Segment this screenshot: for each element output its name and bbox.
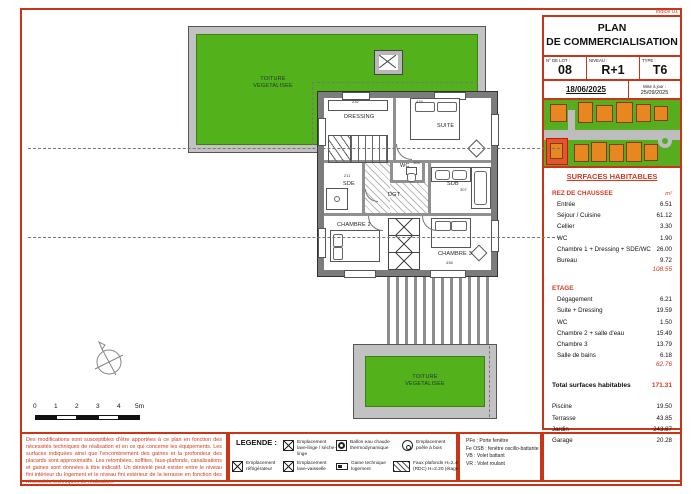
pillow xyxy=(451,221,467,231)
thumb-building xyxy=(550,104,567,122)
thumb-road xyxy=(568,110,575,140)
roof-hidden-edge-v xyxy=(312,82,313,145)
bathtub xyxy=(471,167,491,209)
bathtub-basin xyxy=(474,171,487,205)
abbreviation-list: PFe : Porte fenêtre Fe OSB : fenêtre osc… xyxy=(460,434,540,468)
hatched-area xyxy=(365,163,390,213)
surface-row: Cellier3.30 xyxy=(552,221,672,232)
window-symbol xyxy=(344,270,376,278)
hatched-area xyxy=(390,183,428,213)
shower xyxy=(326,188,348,210)
skylight-icon xyxy=(375,51,402,74)
roof-bottom-dashed-edge xyxy=(489,346,490,417)
room-label-wc: WC xyxy=(400,163,410,169)
date-row: 18/06/2025 Mise à jour : 25/09/2025 xyxy=(544,81,680,100)
room-label-sde: SDE xyxy=(343,181,355,187)
armchair xyxy=(471,245,488,262)
toilet-bowl xyxy=(407,173,416,182)
scale-tick: 5m xyxy=(135,403,144,410)
surface-row: WC1.50 xyxy=(552,317,672,328)
update-date: Mise à jour : 25/09/2025 xyxy=(629,84,680,96)
scale-bar: 0 1 2 3 4 5m xyxy=(35,403,147,425)
scale-segment xyxy=(119,415,140,420)
scale-segment xyxy=(98,415,119,420)
surface-row: WC1.90 xyxy=(552,233,672,244)
section-line xyxy=(28,148,560,149)
surface-row: Suite + Dressing19.59 xyxy=(552,305,672,316)
window-symbol xyxy=(318,228,326,258)
dimension-label: 104 xyxy=(413,160,420,165)
window-symbol xyxy=(318,118,326,146)
closet xyxy=(388,218,420,236)
technical-duct-icon xyxy=(336,463,348,470)
scale-tick: 3 xyxy=(96,403,100,410)
door-arc xyxy=(422,216,437,231)
window-symbol xyxy=(491,220,499,252)
thumb-building xyxy=(626,142,642,162)
scale-tick: 0 xyxy=(33,403,37,410)
thumb-highlighted-lot xyxy=(546,138,568,165)
room-label-suite: SUITE xyxy=(437,123,454,129)
surface-row: Jardin243.87 xyxy=(552,424,672,435)
bed-chambre2 xyxy=(330,230,380,262)
pillow xyxy=(437,102,457,112)
legend-item: Ballon eau chaude thermodynamique xyxy=(336,440,390,452)
surface-row: Chambre 313.79 xyxy=(552,339,672,350)
thumb-building xyxy=(550,143,563,159)
etage-subtotal: 62.76 xyxy=(552,361,672,372)
niveau-cell: NIVEAU : R+1 xyxy=(587,57,640,79)
stair-winder xyxy=(328,135,352,163)
wood-stove-icon xyxy=(402,440,413,451)
thumb-building xyxy=(574,144,589,162)
window-symbol xyxy=(491,114,499,146)
dimension-label: 436 xyxy=(446,260,453,265)
thumb-building xyxy=(636,104,651,122)
roof-bottom-label: TOITURE VEGETALISEE xyxy=(380,374,470,388)
type-cell: TYPE : T6 xyxy=(640,57,680,79)
dimension-label: 479 xyxy=(416,99,423,104)
fridge-box-icon xyxy=(232,461,243,472)
dimension-label: 232 xyxy=(352,99,359,104)
thumb-building xyxy=(609,144,624,162)
lot-cell: N° DE LOT : 08 xyxy=(544,57,587,79)
closet xyxy=(388,252,420,270)
legend-item: Emplacement poêle à bois xyxy=(402,440,456,452)
surfaces-title: SURFACES HABITABLES xyxy=(552,172,672,181)
partition-wall xyxy=(393,98,396,160)
plan-sheet: Indice 01 TOITURE VEGETALISEE TOITURE VE… xyxy=(0,0,700,494)
dimension-label: 211 xyxy=(344,173,350,178)
legend-item: Emplacement lave-vaisselle xyxy=(283,461,337,473)
scale-segment xyxy=(77,415,98,420)
surface-row: Dégagement6.21 xyxy=(552,294,672,305)
shower-drain xyxy=(334,196,340,202)
water-heater-icon xyxy=(336,440,347,451)
thumb-building xyxy=(616,102,633,123)
total-row: Total surfaces habitables 171.31 xyxy=(552,379,672,392)
surfaces-table: SURFACES HABITABLES REZ DE CHAUSSEE m² E… xyxy=(544,168,680,446)
site-plan-thumbnail xyxy=(544,100,680,168)
door-arc xyxy=(396,144,412,160)
surface-row: Terrasse43.85 xyxy=(552,412,672,423)
roof-top-label: TOITURE VEGETALISEE xyxy=(228,76,318,90)
sink xyxy=(452,170,467,180)
annex-surfaces: Piscine19.50 Terrasse43.85 Jardin243.87 … xyxy=(552,401,672,446)
surface-row: Chambre 1 + Dressing + SDE/WC26.00 xyxy=(552,244,672,255)
surface-row: Garage20.28 xyxy=(552,435,672,446)
surface-row: Salle de bains6.18 xyxy=(552,350,672,361)
stair-flight xyxy=(350,135,388,163)
disclaimer-text: Des modifications sont susceptibles d'êt… xyxy=(22,434,226,489)
thumb-building xyxy=(591,142,607,162)
surface-row: Séjour / Cuisine61.12 xyxy=(552,210,672,221)
north-arrow-icon xyxy=(85,336,129,384)
title-block: PLAN DE COMMERCIALISATION N° DE LOT : 08… xyxy=(542,15,682,430)
rdc-header: REZ DE CHAUSSEE m² xyxy=(552,188,672,199)
pergola-stripes xyxy=(387,277,494,344)
room-label-dgt: DGT xyxy=(388,192,400,198)
thumb-building xyxy=(644,144,658,161)
thumb-building xyxy=(578,102,593,123)
surface-row: Piscine19.50 xyxy=(552,401,672,412)
disclaimer-box: Des modifications sont susceptibles d'êt… xyxy=(20,432,228,482)
false-ceiling-hatch-icon xyxy=(393,461,410,472)
sheet-title: PLAN DE COMMERCIALISATION xyxy=(544,17,680,57)
surface-row: Bureau9.72 xyxy=(552,255,672,266)
scale-tick: 1 xyxy=(54,403,58,410)
legend-item: Gaine technique logement xyxy=(336,461,391,473)
abbreviations-box: PFe : Porte fenêtre Fe OSB : fenêtre osc… xyxy=(458,432,542,482)
roof-hidden-edge xyxy=(312,82,478,83)
lot-info-row: N° DE LOT : 08 NIVEAU : R+1 TYPE : T6 xyxy=(544,57,680,81)
pillow xyxy=(333,247,343,260)
partition-wall xyxy=(324,213,491,216)
pillow xyxy=(333,234,343,247)
room-label-sdb: SDB xyxy=(447,181,459,187)
thumb-roundabout xyxy=(658,134,672,148)
thumb-building xyxy=(654,106,668,121)
bed-chambre3 xyxy=(431,218,471,248)
pillow xyxy=(435,221,451,231)
scale-tick: 2 xyxy=(75,403,79,410)
legend-item: Emplacement lave-linge / sèche-linge xyxy=(283,440,337,458)
thumb-building xyxy=(596,105,613,122)
scale-tick: 4 xyxy=(117,403,121,410)
washer-box-icon xyxy=(283,440,294,451)
dishwasher-box-icon xyxy=(283,461,294,472)
vanity-double-sink xyxy=(431,167,471,182)
window-symbol xyxy=(430,270,466,278)
room-label-chambre3: CHAMBRE 3 xyxy=(438,251,472,257)
legend-title: LEGENDE : xyxy=(236,438,277,447)
scale-segment xyxy=(35,415,56,420)
date-value: 18/06/2025 xyxy=(544,81,629,98)
sink xyxy=(435,170,450,180)
legend-box: LEGENDE : Emplacement lave-linge / sèche… xyxy=(228,432,458,482)
legend-item: Emplacement réfrigérateur xyxy=(232,461,286,473)
surface-row: Entrée6.51 xyxy=(552,199,672,210)
surface-row: Chambre 2 + salle d'eau15.49 xyxy=(552,328,672,339)
dimension-label: 307 xyxy=(460,187,467,192)
room-label-chambre2: CHAMBRE 2 xyxy=(337,222,371,228)
scale-segment xyxy=(56,415,77,420)
rdc-subtotal: 108.55 xyxy=(552,266,672,277)
room-label-dressing: DRESSING xyxy=(344,114,374,120)
bed-suite xyxy=(410,98,460,140)
etage-header: ETAGE xyxy=(552,283,672,294)
section-line xyxy=(28,237,560,238)
